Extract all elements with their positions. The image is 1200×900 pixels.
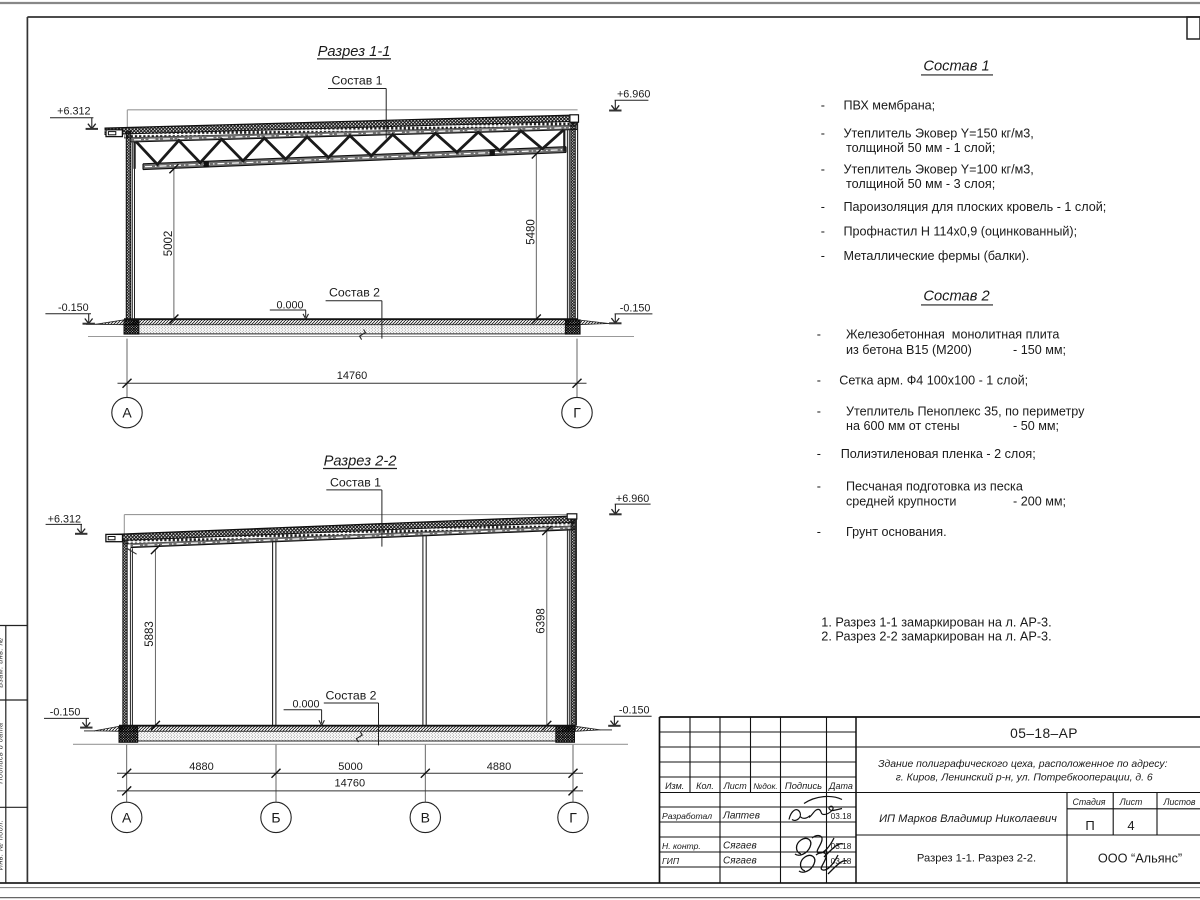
svg-text:№док.: №док. [753, 781, 777, 791]
svg-text:Подпись и дата: Подпись и дата [0, 722, 5, 783]
svg-text:-: - [817, 374, 821, 388]
svg-text:Профнастил Н 114х0,9 (оцинкова: Профнастил Н 114х0,9 (оцинкованный); [844, 225, 1078, 239]
svg-text:толщиной 50 мм - 1 слой;: толщиной 50 мм - 1 слой; [846, 141, 995, 155]
svg-text:Б: Б [271, 809, 280, 825]
svg-text:Разрез 2-2: Разрез 2-2 [324, 453, 397, 469]
svg-text:-0.150: -0.150 [620, 302, 651, 314]
svg-text:-: - [821, 200, 825, 214]
svg-text:Полиэтиленовая пленка - 2 слоя: Полиэтиленовая пленка - 2 слоя; [841, 447, 1036, 461]
svg-text:ГИП: ГИП [662, 856, 680, 866]
svg-text:из бетона В15 (М200): из бетона В15 (М200) [846, 343, 972, 357]
svg-text:А: А [122, 405, 132, 421]
svg-text:+6.312: +6.312 [48, 513, 81, 525]
svg-text:ПВХ мембрана;: ПВХ мембрана; [844, 98, 936, 112]
svg-text:Лист: Лист [723, 781, 748, 791]
svg-text:Песчаная подготовка из песка: Песчаная подготовка из песка [846, 479, 1023, 493]
svg-text:Состав 2: Состав 2 [923, 288, 989, 304]
svg-text:Разрез 1-1. Разрез 2-2.: Разрез 1-1. Разрез 2-2. [917, 853, 1036, 865]
svg-text:Дата: Дата [828, 781, 853, 791]
svg-text:14760: 14760 [337, 370, 368, 382]
svg-text:Инв. № подл.: Инв. № подл. [0, 820, 5, 871]
svg-text:0.000: 0.000 [292, 699, 319, 711]
svg-text:- 150 мм;: - 150 мм; [1013, 343, 1066, 357]
svg-text:Состав 1: Состав 1 [923, 58, 989, 74]
svg-text:03.18: 03.18 [831, 856, 852, 866]
svg-text:Сетка арм. Ф4 100х100 - 1 слой: Сетка арм. Ф4 100х100 - 1 слой; [839, 374, 1028, 388]
svg-text:Состав 1: Состав 1 [332, 74, 383, 88]
svg-text:Состав 1: Состав 1 [330, 475, 381, 489]
svg-text:1. Разрез 1-1 замаркирован на: 1. Разрез 1-1 замаркирован на л. АР-3. [821, 615, 1051, 629]
svg-text:05–18–АР: 05–18–АР [1010, 726, 1078, 741]
svg-text:Здание полиграфического цеха,: Здание полиграфического цеха, расположен… [878, 758, 1167, 770]
svg-text:4880: 4880 [189, 761, 213, 773]
svg-text:Утеплитель Пеноплекс 35, по пе: Утеплитель Пеноплекс 35, по периметру [846, 404, 1085, 418]
svg-text:Сягаев: Сягаев [723, 855, 757, 866]
svg-text:-: - [817, 328, 821, 342]
svg-text:6398: 6398 [536, 608, 548, 634]
svg-text:Утеплитель Эковер Y=100 кг/м3,: Утеплитель Эковер Y=100 кг/м3, [844, 162, 1034, 176]
svg-text:средней крупности: средней крупности [846, 494, 956, 508]
svg-text:Железобетонная монолитная пли: Железобетонная монолитная плита [846, 328, 1059, 342]
svg-text:-0.150: -0.150 [50, 707, 81, 719]
svg-text:г. Киров, Ленинский р-н, ул.: г. Киров, Ленинский р-н, ул. Потребкоопе… [896, 771, 1153, 783]
svg-text:П: П [1085, 818, 1094, 833]
svg-text:- 50 мм;: - 50 мм; [1013, 419, 1059, 433]
svg-text:А: А [122, 809, 132, 825]
svg-text:Состав 2: Состав 2 [326, 688, 377, 702]
svg-text:4: 4 [1127, 818, 1134, 833]
svg-text:толщиной 50 мм - 3 слоя;: толщиной 50 мм - 3 слоя; [846, 177, 995, 191]
svg-text:-: - [817, 525, 821, 539]
svg-text:-0.150: -0.150 [58, 302, 89, 314]
svg-text:Подпись: Подпись [785, 780, 822, 791]
svg-text:на 600 мм от стены: на 600 мм от стены [846, 419, 960, 433]
svg-text:-0.150: -0.150 [619, 705, 650, 717]
svg-text:ИП Марков Владимир Николаевич: ИП Марков Владимир Николаевич [879, 813, 1057, 825]
svg-text:-: - [817, 479, 821, 493]
svg-text:Г: Г [569, 809, 577, 825]
svg-text:4880: 4880 [487, 761, 511, 773]
svg-text:Утеплитель Эковер Y=150 кг/м3,: Утеплитель Эковер Y=150 кг/м3, [844, 126, 1034, 140]
svg-text:-: - [821, 126, 825, 140]
svg-text:Грунт основания.: Грунт основания. [846, 525, 947, 539]
svg-text:-: - [821, 98, 825, 112]
svg-text:Разрез 1-1: Разрез 1-1 [318, 44, 391, 60]
svg-text:Металлические фермы (балки).: Металлические фермы (балки). [844, 249, 1030, 263]
svg-text:5883: 5883 [144, 621, 156, 647]
svg-text:Лаптев: Лаптев [722, 810, 760, 821]
svg-text:Кол.: Кол. [696, 781, 714, 791]
svg-text:5000: 5000 [338, 761, 362, 773]
svg-text:Взам. инв. №: Взам. инв. № [0, 637, 5, 687]
svg-text:+6.312: +6.312 [57, 106, 90, 118]
svg-text:03.18: 03.18 [831, 841, 852, 851]
svg-text:ООО “Альянс”: ООО “Альянс” [1098, 851, 1182, 865]
svg-text:Сягаев: Сягаев [723, 840, 757, 851]
svg-text:Пароизоляция для плоских крове: Пароизоляция для плоских кровель - 1 сло… [844, 200, 1107, 214]
svg-text:5480: 5480 [525, 219, 537, 245]
svg-text:2. Разрез 2-2 замаркирован на: 2. Разрез 2-2 замаркирован на л. АР-3. [821, 630, 1051, 644]
svg-text:- 200 мм;: - 200 мм; [1013, 494, 1066, 508]
svg-text:Состав 2: Состав 2 [329, 285, 380, 299]
svg-text:Листов: Листов [1162, 797, 1195, 807]
svg-text:Разработал: Разработал [662, 811, 712, 821]
svg-text:В: В [421, 809, 430, 825]
svg-text:-: - [817, 404, 821, 418]
svg-text:-: - [821, 162, 825, 176]
svg-text:Стадия: Стадия [1073, 797, 1106, 807]
svg-text:14760: 14760 [335, 778, 366, 790]
svg-text:Лист: Лист [1119, 797, 1143, 807]
svg-text:-: - [821, 225, 825, 239]
svg-text:Н. контр.: Н. контр. [662, 841, 701, 851]
svg-text:03.18: 03.18 [831, 811, 852, 821]
svg-text:-: - [821, 249, 825, 263]
svg-text:Изм.: Изм. [665, 781, 684, 791]
svg-text:-: - [817, 447, 821, 461]
svg-text:+6.960: +6.960 [616, 493, 649, 505]
svg-text:+6.960: +6.960 [617, 89, 650, 101]
svg-text:5002: 5002 [163, 231, 175, 257]
svg-text:Г: Г [573, 405, 581, 421]
